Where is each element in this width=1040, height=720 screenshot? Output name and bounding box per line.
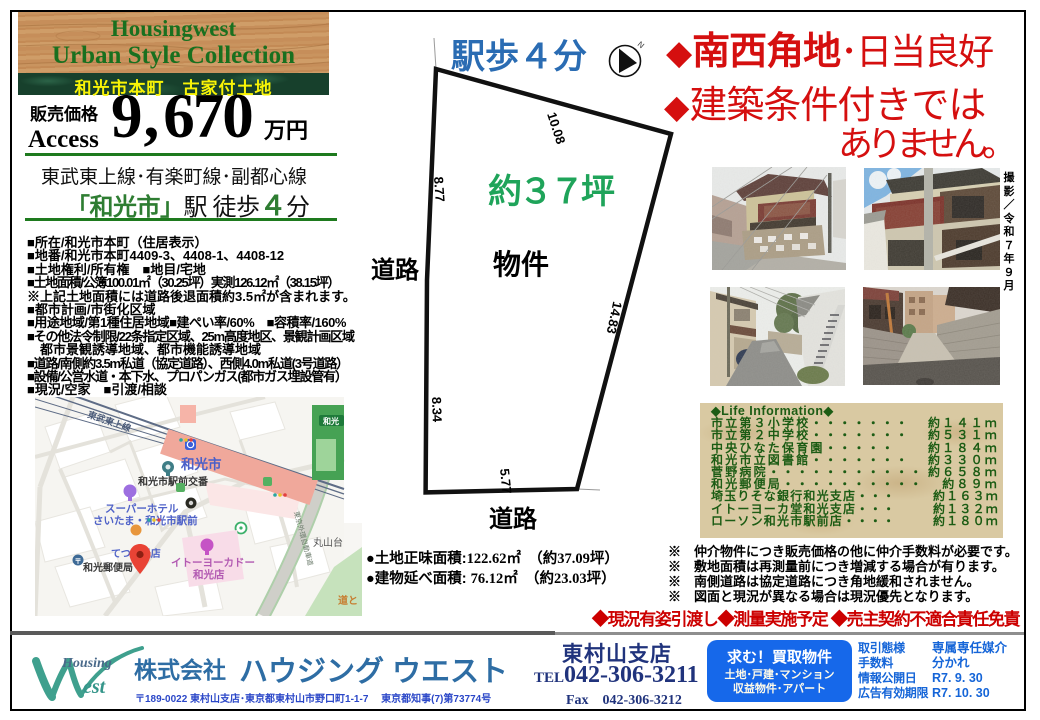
svg-text:8.77: 8.77 bbox=[431, 176, 448, 202]
svg-text:イトーヨーカドー: イトーヨーカドー bbox=[171, 557, 255, 569]
svg-text:14.83: 14.83 bbox=[604, 300, 625, 335]
svg-text:和光市駅前交番: 和光市駅前交番 bbox=[137, 475, 209, 488]
svg-text:10.08: 10.08 bbox=[544, 110, 568, 146]
svg-text:和光市: 和光市 bbox=[181, 456, 222, 472]
svg-text:est: est bbox=[83, 676, 107, 698]
svg-text:〒: 〒 bbox=[75, 558, 82, 566]
svg-text:丸山台: 丸山台 bbox=[313, 536, 343, 549]
svg-text:道と: 道と bbox=[338, 594, 358, 607]
svg-text:スーパーホテル: スーパーホテル bbox=[105, 503, 179, 515]
svg-text:和光店: 和光店 bbox=[192, 568, 225, 581]
svg-text:Housing: Housing bbox=[61, 656, 112, 671]
svg-text:8.34: 8.34 bbox=[429, 397, 445, 424]
svg-text:和光郵便局: 和光郵便局 bbox=[82, 561, 133, 574]
svg-text:5.77: 5.77 bbox=[497, 468, 515, 495]
svg-text:さいたま・和光市駅前: さいたま・和光市駅前 bbox=[93, 514, 198, 527]
svg-text:N: N bbox=[636, 40, 646, 51]
svg-text:和光: 和光 bbox=[323, 416, 339, 426]
